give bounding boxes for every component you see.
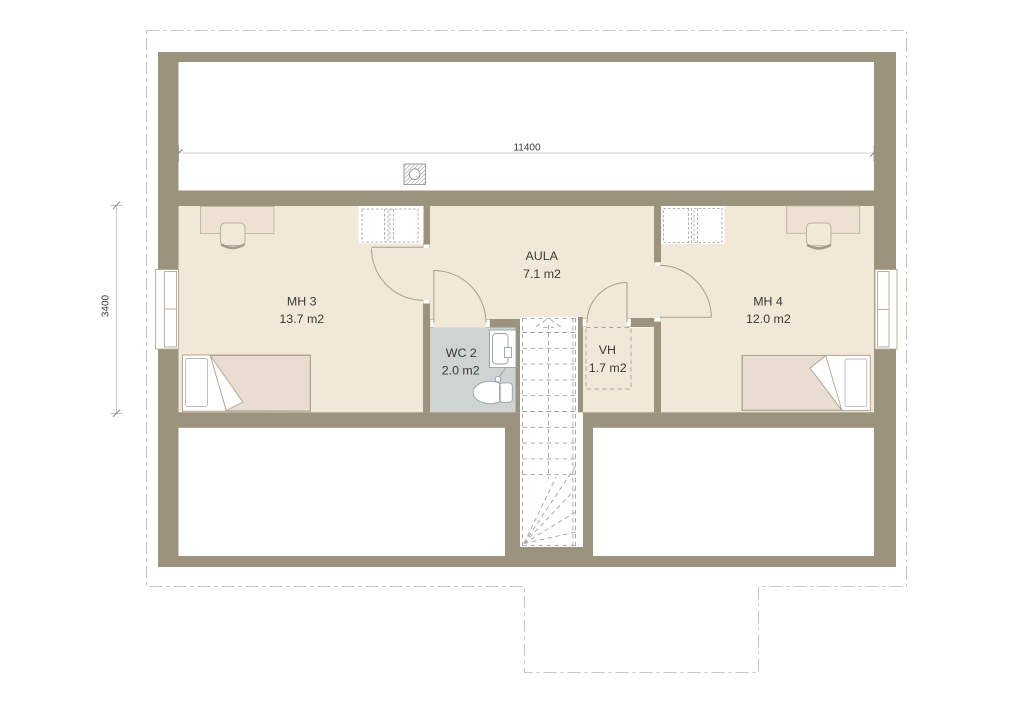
svg-text:12.0 m2: 12.0 m2 (746, 312, 791, 326)
svg-text:AULA: AULA (526, 249, 559, 263)
svg-text:MH 3: MH 3 (287, 294, 317, 308)
svg-text:2.0 m2: 2.0 m2 (442, 364, 480, 378)
svg-text:11400: 11400 (513, 143, 541, 154)
svg-text:1.7 m2: 1.7 m2 (589, 361, 627, 375)
svg-text:VH: VH (599, 343, 616, 357)
svg-text:13.7 m2: 13.7 m2 (279, 312, 324, 326)
svg-text:3400: 3400 (101, 294, 112, 317)
svg-text:WC 2: WC 2 (446, 346, 477, 360)
svg-text:MH 4: MH 4 (753, 295, 783, 309)
svg-text:7.1 m2: 7.1 m2 (523, 267, 561, 281)
